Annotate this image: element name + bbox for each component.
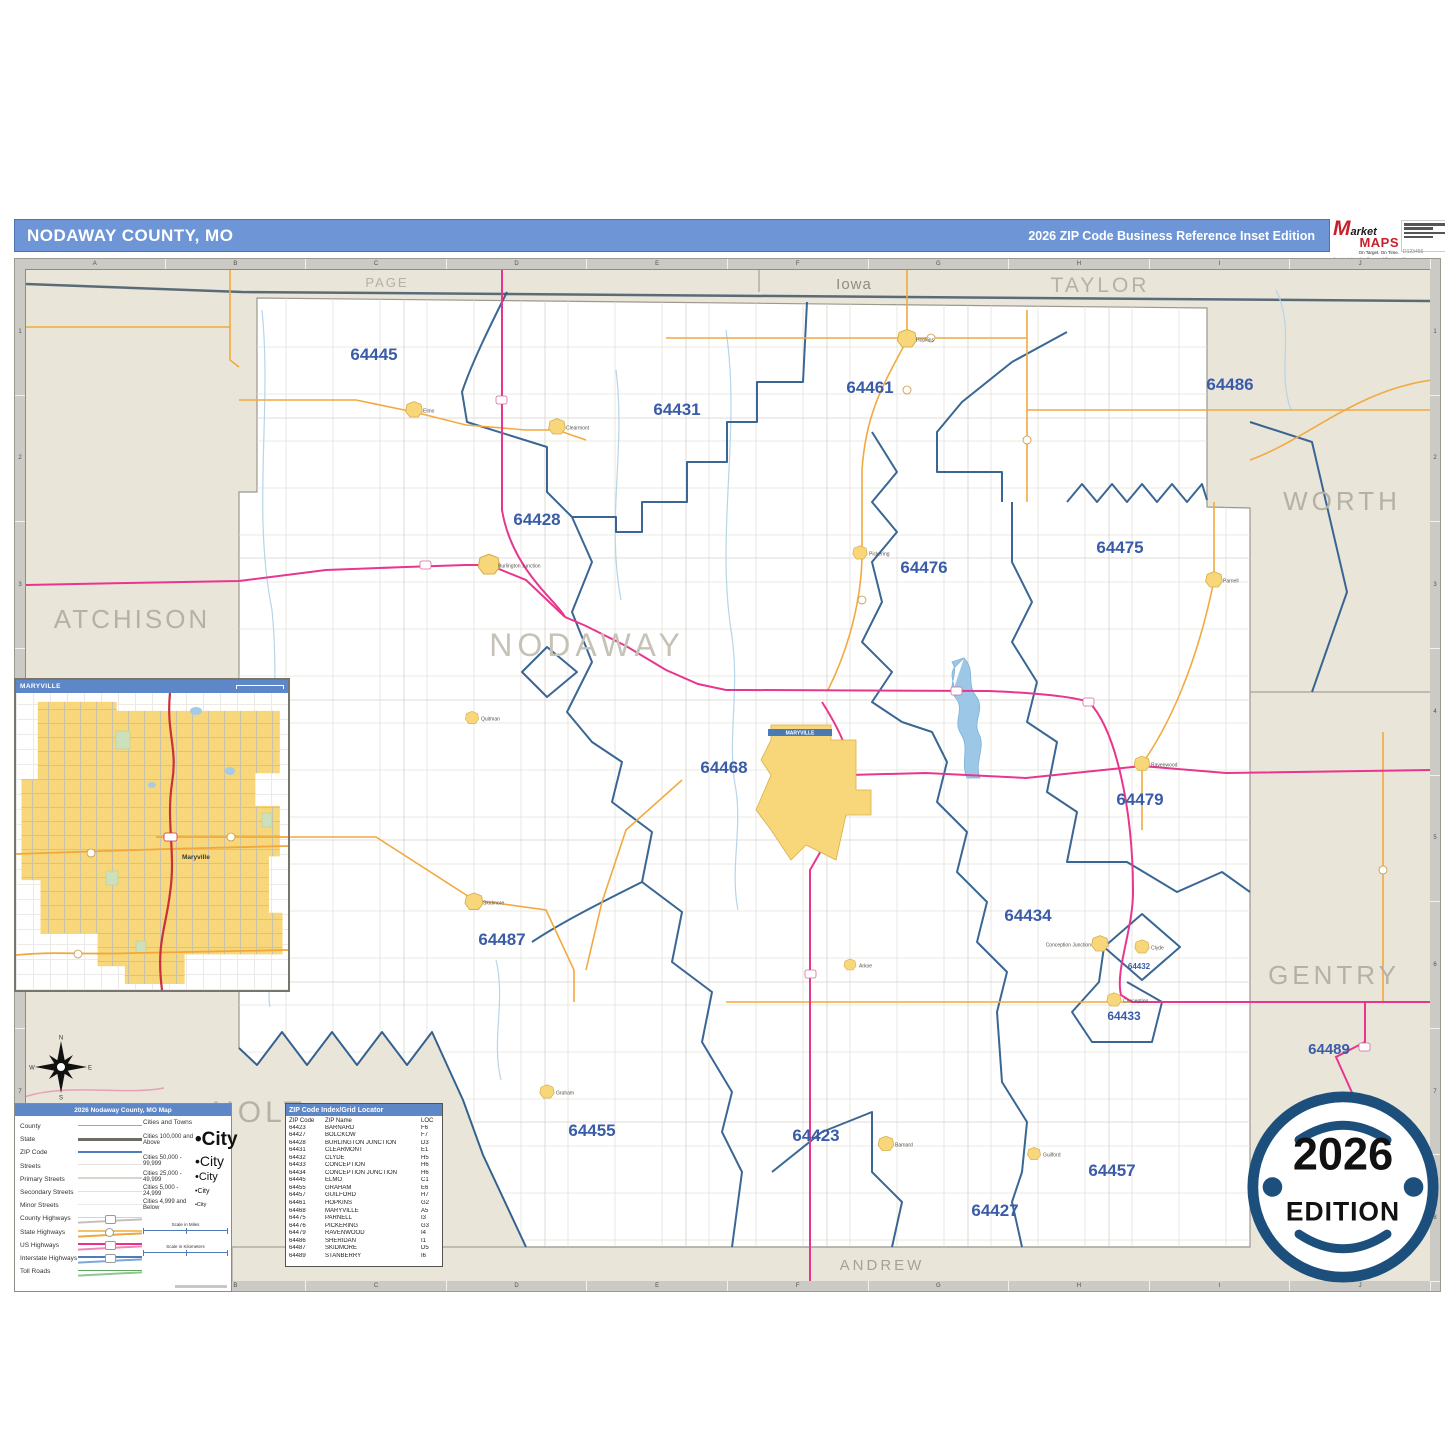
maryville-inset-map: MARYVILLE xyxy=(14,678,290,992)
legend-sample-line xyxy=(78,1164,142,1165)
ruler-label: D xyxy=(514,261,518,267)
legend-sample-line xyxy=(78,1177,142,1179)
table-cell: 64428 xyxy=(289,1140,325,1148)
table-cell: D3 xyxy=(421,1140,439,1148)
zip-code-label: 64428 xyxy=(513,510,560,529)
table-row: 64427BOLCKOWF7 xyxy=(289,1132,439,1140)
ruler-cell: 3 xyxy=(1430,522,1440,649)
town-label: Skidmore xyxy=(483,901,504,907)
ruler-label: B xyxy=(233,261,237,267)
legend-shield xyxy=(105,1241,116,1250)
badge-word: EDITION xyxy=(1286,1196,1400,1226)
town-area xyxy=(1206,572,1223,587)
legend-line-sample xyxy=(78,1227,142,1237)
scale-km-bar xyxy=(143,1250,228,1256)
legend-sample-line xyxy=(78,1125,142,1127)
ruler-cell: 6 xyxy=(1430,902,1440,1029)
town-label: Pickering xyxy=(869,552,890,558)
table-cell: CLYDE xyxy=(325,1155,421,1163)
table-cell: PICKERING xyxy=(325,1223,421,1231)
ruler-cell: 2 xyxy=(15,396,25,523)
town-area xyxy=(465,711,478,723)
badge-left-dot xyxy=(1263,1177,1283,1197)
legend-city-classes: Cities 100,000 and Above•CityCities 50,0… xyxy=(143,1129,231,1211)
ruler-label: G xyxy=(936,261,941,267)
inset-parks xyxy=(106,731,272,953)
grid-ruler-bottom: ABCDEFGHIJ xyxy=(25,1281,1431,1291)
ruler-cell: 1 xyxy=(15,269,25,396)
city-class-sample: •City xyxy=(195,1129,238,1151)
ruler-label: C xyxy=(374,261,378,267)
ruler-label: G xyxy=(936,1283,941,1289)
ruler-label: H xyxy=(1077,261,1081,267)
table-cell: F7 xyxy=(421,1132,439,1140)
table-row: 64475PARNELLI3 xyxy=(289,1215,439,1223)
town-area xyxy=(406,402,423,417)
city-class-label: Cities 50,000 - 99,999 xyxy=(143,1155,195,1167)
zip-code-label: 64431 xyxy=(653,400,700,419)
table-cell: 64445 xyxy=(289,1177,325,1185)
city-class-row: Cities 50,000 - 99,999•City xyxy=(143,1153,231,1169)
ruler-label: E xyxy=(655,1283,659,1289)
table-cell: H6 xyxy=(421,1162,439,1170)
table-cell: 64423 xyxy=(289,1125,325,1133)
compass-e: E xyxy=(88,1066,92,1072)
table-cell: F6 xyxy=(421,1125,439,1133)
county-label: TAYLOR xyxy=(1051,274,1150,297)
town-area xyxy=(465,893,483,910)
county-label: NODAWAY xyxy=(489,627,685,663)
logo-contact-box xyxy=(1401,220,1445,252)
town-label: Barnard xyxy=(895,1143,913,1149)
ruler-label: H xyxy=(1077,1283,1081,1289)
legend-row: Primary Streets xyxy=(20,1173,142,1186)
zip-table-columns: ZIP Code ZIP Name LOC xyxy=(286,1116,442,1125)
town-area xyxy=(878,1136,894,1150)
legend-item-label: Interstate Highways xyxy=(20,1255,78,1262)
legend-row: Secondary Streets xyxy=(20,1186,142,1199)
legend-item-label: ZIP Code xyxy=(20,1149,78,1156)
city-class-label: Cities 5,000 - 24,999 xyxy=(143,1185,195,1197)
legend-row: Minor Streets xyxy=(20,1199,142,1212)
legend-shield xyxy=(105,1215,116,1224)
table-row: 64461HOPKINSG2 xyxy=(289,1200,439,1208)
zip-code-label: 64476 xyxy=(900,558,947,577)
header-bar: NODAWAY COUNTY, MO 2026 ZIP Code Busines… xyxy=(14,219,1330,252)
legend-row: Toll Roads xyxy=(20,1265,142,1278)
table-cell: 64433 xyxy=(289,1162,325,1170)
city-class-sample: •City xyxy=(195,1202,206,1208)
town-area xyxy=(540,1085,554,1098)
legend-row: County xyxy=(20,1120,142,1133)
marketmaps-logo: Market MAPS On Target. On Time. America'… xyxy=(1333,219,1445,257)
table-row: 64431CLEARMONTE1 xyxy=(289,1147,439,1155)
table-cell: 64476 xyxy=(289,1223,325,1231)
map-poster-page: NODAWAY COUNTY, MO 2026 ZIP Code Busines… xyxy=(0,0,1445,1445)
ruler-cell: 4 xyxy=(1430,649,1440,776)
ruler-cell: D xyxy=(447,259,588,269)
city-class-row: Cities 100,000 and Above•City xyxy=(143,1129,231,1151)
table-cell: BOLCKOW xyxy=(325,1132,421,1140)
table-row: 64487SKIDMORED5 xyxy=(289,1245,439,1253)
col-zip-name: ZIP Name xyxy=(325,1118,421,1124)
zip-index-table: ZIP Code Index/Grid Locator ZIP Code ZIP… xyxy=(285,1103,443,1267)
legend-line-sample xyxy=(78,1174,142,1184)
legend-sample-line xyxy=(78,1271,142,1276)
table-cell: SKIDMORE xyxy=(325,1245,421,1253)
ruler-label: 3 xyxy=(18,582,21,588)
town-area xyxy=(853,546,867,559)
legend-cities-header: Cities and Towns xyxy=(143,1119,231,1126)
table-cell: 64489 xyxy=(289,1253,325,1261)
table-cell: 64434 xyxy=(289,1170,325,1178)
page-title: NODAWAY COUNTY, MO xyxy=(15,226,233,246)
table-cell: H7 xyxy=(421,1192,439,1200)
legend-item-label: State xyxy=(20,1136,78,1143)
legend-scales: Scale in Miles Scale in Kilometers xyxy=(143,1222,228,1266)
ruler-cell: C xyxy=(306,1281,447,1291)
town-label: Conception xyxy=(1123,999,1149,1005)
legend-copyright xyxy=(175,1285,227,1288)
table-cell: 64487 xyxy=(289,1245,325,1253)
county-label: ANDREW xyxy=(840,1257,925,1274)
table-cell: 64479 xyxy=(289,1230,325,1238)
legend-line-sample xyxy=(78,1148,142,1158)
contact-line xyxy=(1404,232,1445,235)
legend-line-sample xyxy=(78,1135,142,1145)
legend-sample-line xyxy=(78,1151,142,1153)
table-row: 64433CONCEPTIONH6 xyxy=(289,1162,439,1170)
table-cell: I6 xyxy=(421,1253,439,1261)
legend-line-sample xyxy=(78,1188,142,1198)
town-label: Clyde xyxy=(1151,946,1164,952)
legend-shield xyxy=(105,1228,114,1237)
table-cell: G2 xyxy=(421,1200,439,1208)
ruler-label: 3 xyxy=(1433,582,1436,588)
town-area xyxy=(1135,940,1149,953)
town-label: Graham xyxy=(556,1091,574,1097)
legend-line-sample xyxy=(78,1214,142,1224)
inset-overlay: Maryville xyxy=(16,693,288,990)
legend-box: 2026 Nodaway County, MO Map CountyStateZ… xyxy=(14,1103,232,1292)
table-cell: I1 xyxy=(421,1238,439,1246)
table-cell: H6 xyxy=(421,1170,439,1178)
legend-item-label: Streets xyxy=(20,1163,78,1170)
inset-title: MARYVILLE xyxy=(16,683,61,690)
town-area xyxy=(844,959,856,970)
town-label: Parnell xyxy=(1223,579,1239,585)
table-cell: H5 xyxy=(421,1155,439,1163)
table-cell: STANBERRY xyxy=(325,1253,421,1261)
legend-item-label: Toll Roads xyxy=(20,1268,78,1275)
legend-line-sample xyxy=(78,1240,142,1250)
town-label: Conception Junction xyxy=(1046,943,1092,949)
table-cell: I3 xyxy=(421,1215,439,1223)
table-cell: 64455 xyxy=(289,1185,325,1193)
ruler-cell: E xyxy=(587,1281,728,1291)
legend-row: US Highways xyxy=(20,1239,142,1252)
compass-w: W xyxy=(29,1066,35,1072)
zip-code-label: 64455 xyxy=(568,1121,615,1140)
legend-item-label: County xyxy=(20,1123,78,1130)
table-row: 64457GUILFORDH7 xyxy=(289,1192,439,1200)
table-cell: 64468 xyxy=(289,1208,325,1216)
table-cell: 64475 xyxy=(289,1215,325,1223)
legend-sample-line xyxy=(78,1191,142,1192)
table-cell: BURLINGTON JUNCTION xyxy=(325,1140,421,1148)
table-row: 64489STANBERRYI6 xyxy=(289,1253,439,1261)
table-cell: 64432 xyxy=(289,1155,325,1163)
compass-s: S xyxy=(59,1096,63,1101)
legend-item-label: Minor Streets xyxy=(20,1202,78,1209)
table-cell: E1 xyxy=(421,1147,439,1155)
table-row: 64423BARNARDF6 xyxy=(289,1125,439,1133)
ruler-label: F xyxy=(796,1283,800,1289)
zip-code-label: 64489 xyxy=(1308,1041,1350,1058)
legend-line-sample xyxy=(78,1201,142,1211)
badge-year: 2026 xyxy=(1293,1128,1393,1179)
town-label: Clearmont xyxy=(566,426,590,432)
compass-n: N xyxy=(59,1036,63,1042)
zip-code-label: 64461 xyxy=(846,378,893,397)
legend-line-sample xyxy=(78,1161,142,1171)
ruler-cell: H xyxy=(1009,1281,1150,1291)
legend-row: Streets xyxy=(20,1160,142,1173)
table-row: 64434CONCEPTION JUNCTIONH6 xyxy=(289,1170,439,1178)
city-class-row: Cities 4,999 and Below•City xyxy=(143,1199,231,1211)
grid-ruler-top: ABCDEFGHIJ xyxy=(25,259,1431,269)
ruler-label: 2 xyxy=(18,455,21,461)
table-cell: PARNELL xyxy=(325,1215,421,1223)
zip-table-title: ZIP Code Index/Grid Locator xyxy=(286,1107,383,1114)
ruler-label: J xyxy=(1359,261,1362,267)
col-loc: LOC xyxy=(421,1118,439,1124)
ruler-label: D xyxy=(514,1283,518,1289)
ruler-label: C xyxy=(374,1283,378,1289)
ruler-cell: C xyxy=(306,259,447,269)
table-cell: CONCEPTION xyxy=(325,1162,421,1170)
table-row: 64445ELMOC1 xyxy=(289,1177,439,1185)
city-class-label: Cities 25,000 - 49,999 xyxy=(143,1171,195,1183)
town-label: Arkoe xyxy=(859,964,872,970)
legend-item-label: Secondary Streets xyxy=(20,1189,78,1196)
table-cell: G3 xyxy=(421,1223,439,1231)
table-row: 64432CLYDEH5 xyxy=(289,1155,439,1163)
city-class-row: Cities 5,000 - 24,999•City xyxy=(143,1185,231,1197)
table-cell: HOPKINS xyxy=(325,1200,421,1208)
city-class-label: Cities 100,000 and Above xyxy=(143,1134,195,1146)
zip-code-label: 64423 xyxy=(792,1126,839,1145)
table-cell: RAVENWOOD xyxy=(325,1230,421,1238)
zip-code-label: 64487 xyxy=(478,930,525,949)
table-row: 64479RAVENWOODI4 xyxy=(289,1230,439,1238)
table-cell: ELMO xyxy=(325,1177,421,1185)
ruler-cell: B xyxy=(166,259,307,269)
zip-code-label: 64434 xyxy=(1004,906,1052,925)
town-area xyxy=(1092,936,1109,951)
ruler-cell: F xyxy=(728,1281,869,1291)
zip-code-label: 64457 xyxy=(1088,1161,1135,1180)
logo-m: M xyxy=(1333,217,1351,240)
town-label: Ravenwood xyxy=(1151,763,1178,769)
zip-code-label: 64475 xyxy=(1096,538,1143,557)
county-label: WORTH xyxy=(1283,486,1401,516)
ruler-cell: A xyxy=(25,259,166,269)
compass-rose: N E S W xyxy=(28,1034,94,1100)
town-label: Quitman xyxy=(481,717,500,723)
table-cell: 64486 xyxy=(289,1238,325,1246)
maryville-label: MARYVILLE xyxy=(786,731,815,737)
table-cell: 64457 xyxy=(289,1192,325,1200)
legend-item-label: State Highways xyxy=(20,1229,78,1236)
contact-line xyxy=(1404,236,1433,239)
town-area xyxy=(897,329,916,347)
legend-line-items: CountyStateZIP CodeStreetsPrimary Street… xyxy=(20,1120,142,1278)
town-label: Burlington Junction xyxy=(498,564,541,570)
city-class-sample: •City xyxy=(195,1153,224,1169)
zip-code-label: 64479 xyxy=(1116,790,1163,809)
legend-title-bar: 2026 Nodaway County, MO Map xyxy=(15,1104,231,1116)
edition-subtitle: 2026 ZIP Code Business Reference Inset E… xyxy=(1028,229,1329,243)
logo-order-code: D123456 xyxy=(1403,249,1423,255)
town-label: Guilford xyxy=(1043,1153,1061,1159)
scale-miles-block: Scale in Miles xyxy=(143,1222,228,1234)
legend-row: Interstate Highways xyxy=(20,1252,142,1265)
inset-ponds xyxy=(148,707,235,788)
zip-code-label: 64433 xyxy=(1107,1009,1141,1023)
contact-line xyxy=(1404,227,1433,230)
table-cell: E6 xyxy=(421,1185,439,1193)
legend-item-label: County Highways xyxy=(20,1215,78,1222)
scale-miles-bar xyxy=(143,1228,228,1234)
zip-code-label: 64486 xyxy=(1206,375,1253,394)
town-area xyxy=(549,419,566,434)
town-area xyxy=(1134,756,1150,770)
table-cell: D5 xyxy=(421,1245,439,1253)
table-row: 64476PICKERINGG3 xyxy=(289,1223,439,1231)
ruler-cell: G xyxy=(869,259,1010,269)
town-area xyxy=(1027,1147,1040,1159)
legend-row: State Highways xyxy=(20,1226,142,1239)
ruler-cell: E xyxy=(587,259,728,269)
ruler-label: 5 xyxy=(1433,835,1436,841)
legend-sample-line xyxy=(78,1138,142,1141)
scale-miles-label: Scale in Miles xyxy=(143,1222,228,1227)
inset-scale-bar xyxy=(236,685,284,689)
table-cell: C1 xyxy=(421,1177,439,1185)
ruler-cell: 5 xyxy=(1430,776,1440,903)
city-class-sample: •City xyxy=(195,1171,218,1183)
table-cell: SHERIDAN xyxy=(325,1238,421,1246)
ruler-cell: 1 xyxy=(1430,269,1440,396)
ruler-label: 1 xyxy=(18,329,21,335)
table-cell: GUILFORD xyxy=(325,1192,421,1200)
city-class-sample: •City xyxy=(195,1188,210,1195)
legend-sample-line xyxy=(78,1204,142,1205)
inset-roads xyxy=(16,693,288,990)
ruler-label: B xyxy=(233,1283,237,1289)
table-cell: I4 xyxy=(421,1230,439,1238)
table-row: 64486SHERIDANI1 xyxy=(289,1238,439,1246)
table-cell: A5 xyxy=(421,1208,439,1216)
zip-code-label: 64427 xyxy=(971,1201,1018,1220)
ruler-label: 7 xyxy=(18,1089,21,1095)
table-cell: 64461 xyxy=(289,1200,325,1208)
table-cell: GRAHAM xyxy=(325,1185,421,1193)
table-row: 64455GRAHAME6 xyxy=(289,1185,439,1193)
legend-cities: Cities and Towns Cities 100,000 and Abov… xyxy=(143,1119,231,1213)
town-label: Hopkins xyxy=(916,338,935,344)
town-area xyxy=(1107,993,1121,1006)
contact-line xyxy=(1404,223,1445,226)
county-label: GENTRY xyxy=(1268,960,1400,990)
county-label: Iowa xyxy=(836,276,872,293)
legend-row: ZIP Code xyxy=(20,1146,142,1159)
ruler-label: 4 xyxy=(1433,709,1436,715)
zip-code-label: 64432 xyxy=(1128,962,1151,971)
table-cell: CLEARMONT xyxy=(325,1147,421,1155)
ruler-cell: I xyxy=(1150,259,1291,269)
table-cell: BARNARD xyxy=(325,1125,421,1133)
town-label: Elmo xyxy=(423,409,435,415)
legend-row: County Highways xyxy=(20,1212,142,1225)
scale-km-label: Scale in Kilometers xyxy=(143,1244,228,1249)
scale-km-block: Scale in Kilometers xyxy=(143,1244,228,1256)
table-row: 64428BURLINGTON JUNCTIOND3 xyxy=(289,1140,439,1148)
zip-table-rows: 64423BARNARDF664427BOLCKOWF764428BURLING… xyxy=(286,1125,442,1261)
badge-right-dot xyxy=(1404,1177,1424,1197)
ruler-label: E xyxy=(655,261,659,267)
city-class-row: Cities 25,000 - 49,999•City xyxy=(143,1171,231,1183)
legend-item-label: US Highways xyxy=(20,1242,78,1249)
table-row: 64468MARYVILLEA5 xyxy=(289,1208,439,1216)
ruler-label: A xyxy=(93,261,97,267)
inset-body: Maryville xyxy=(16,693,288,990)
legend-line-sample xyxy=(78,1267,142,1277)
table-cell: 64427 xyxy=(289,1132,325,1140)
legend-line-sample xyxy=(78,1122,142,1132)
ruler-cell: J xyxy=(1290,259,1431,269)
town-area xyxy=(478,554,500,574)
ruler-cell: 2 xyxy=(1430,396,1440,523)
legend-line-sample xyxy=(78,1253,142,1263)
city-class-label: Cities 4,999 and Below xyxy=(143,1199,195,1211)
ruler-cell: H xyxy=(1009,259,1150,269)
ruler-label: F xyxy=(796,261,800,267)
ruler-label: I xyxy=(1219,261,1221,267)
ruler-cell: G xyxy=(869,1281,1010,1291)
ruler-label: 2 xyxy=(1433,455,1436,461)
ruler-label: 1 xyxy=(1433,329,1436,335)
legend-row: State xyxy=(20,1133,142,1146)
logo-tagline: On Target. On Time. xyxy=(1333,250,1399,255)
county-label: ATCHISON xyxy=(54,604,210,634)
table-cell: CONCEPTION JUNCTION xyxy=(325,1170,421,1178)
county-label: PAGE xyxy=(365,275,408,290)
legend-shield xyxy=(105,1254,116,1263)
zip-table-title-bar: ZIP Code Index/Grid Locator xyxy=(286,1104,442,1116)
inset-city-label: Maryville xyxy=(182,854,210,861)
legend-item-label: Primary Streets xyxy=(20,1176,78,1183)
inset-title-bar: MARYVILLE xyxy=(16,680,288,693)
legend-title: 2026 Nodaway County, MO Map xyxy=(74,1107,171,1114)
col-zip-code: ZIP Code xyxy=(289,1118,325,1124)
ruler-label: 6 xyxy=(1433,962,1436,968)
table-cell: 64431 xyxy=(289,1147,325,1155)
ruler-label: I xyxy=(1219,1283,1221,1289)
ruler-cell: 3 xyxy=(15,522,25,649)
zip-code-label: 64468 xyxy=(700,758,747,777)
